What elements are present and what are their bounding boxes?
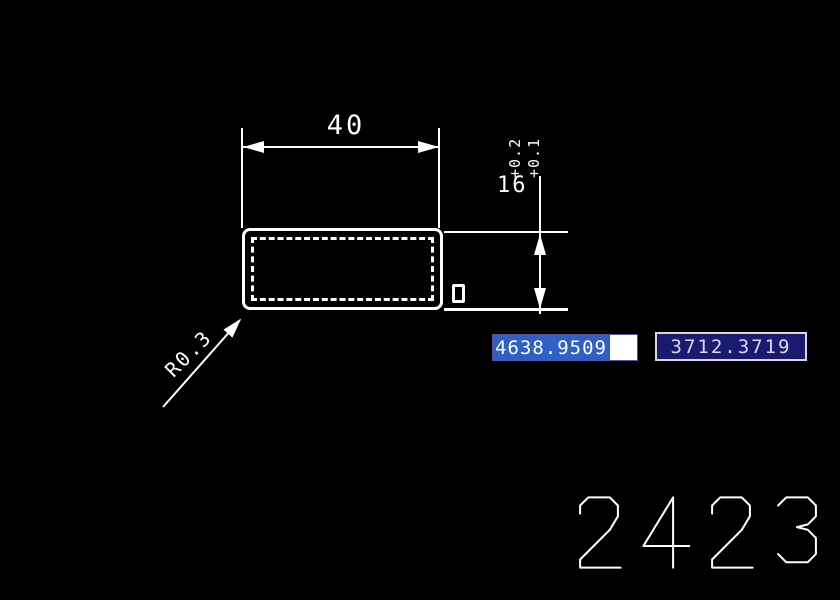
width-dimension-text: 40 bbox=[316, 110, 376, 141]
small-square-feature[interactable] bbox=[452, 284, 465, 303]
coordinate-y-value: 3712.3719 bbox=[671, 336, 792, 358]
arrowhead-left-icon bbox=[243, 141, 264, 153]
tolerance-upper: +0.2 bbox=[506, 110, 525, 178]
leader-label: R0.3 bbox=[141, 306, 233, 398]
coordinate-x-value: 4638.9509 bbox=[493, 335, 610, 361]
coordinate-x-input[interactable]: 4638.9509 bbox=[492, 334, 638, 361]
coordinate-y-input[interactable]: 3712.3719 bbox=[655, 332, 807, 361]
hidden-line-inner-rect[interactable] bbox=[251, 237, 434, 301]
tolerance-lower: +0.1 bbox=[525, 110, 544, 178]
arrowhead-up-icon bbox=[534, 234, 546, 255]
part-number-text bbox=[572, 492, 832, 578]
extension-line-top bbox=[444, 231, 568, 233]
dimension-line-top bbox=[243, 146, 439, 148]
extension-line-bottom bbox=[444, 308, 568, 311]
arrowhead-down-icon bbox=[534, 288, 546, 309]
tolerance-stack: +0.2 +0.1 bbox=[506, 110, 546, 178]
cad-drawing-canvas[interactable]: 40 16 +0.2 +0.1 R0.3 4638.9509 3712.3719 bbox=[0, 0, 840, 600]
arrowhead-right-icon bbox=[418, 141, 439, 153]
